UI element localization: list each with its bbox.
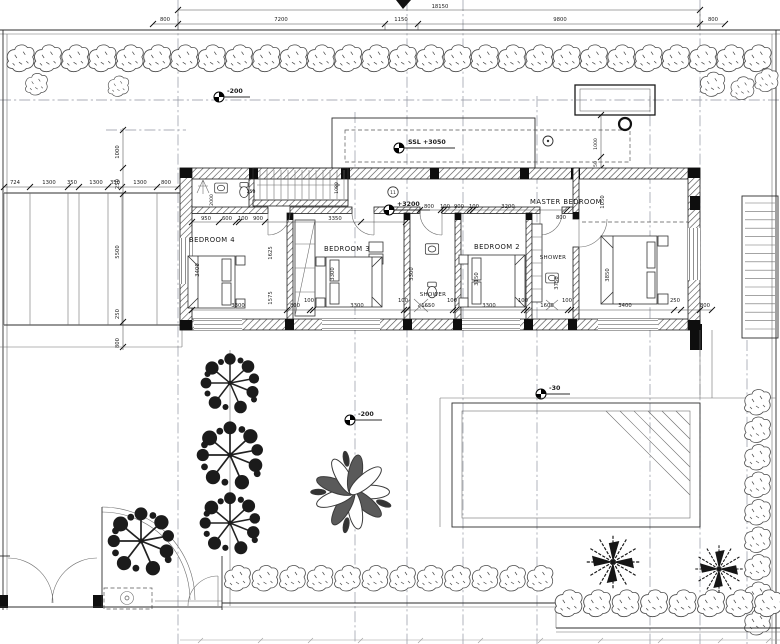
dim-label: 1300 [133, 180, 147, 186]
shower1-fixtures [414, 244, 439, 312]
level-label: SSL +3050 [408, 139, 446, 146]
svg-text:3750: 3750 [554, 276, 560, 290]
dim-label: 350 [67, 180, 78, 186]
svg-text:900: 900 [253, 216, 264, 222]
svg-text:3150: 3150 [474, 272, 480, 286]
svg-text:3200: 3200 [501, 204, 515, 210]
svg-text:950: 950 [201, 216, 212, 222]
svg-text:600: 600 [222, 216, 233, 222]
bed-bedroom3 [316, 257, 382, 307]
svg-text:1650: 1650 [421, 303, 435, 309]
dim-label: 800 [160, 17, 171, 23]
dim-label: 724 [10, 180, 21, 186]
dim-label: 800 [115, 337, 121, 348]
svg-text:3300: 3300 [350, 303, 364, 309]
svg-text:100: 100 [447, 298, 458, 304]
room-label-bedroom3: BEDROOM 3 [324, 245, 370, 253]
room-label-master: MASTER BEDROOM [530, 198, 602, 206]
svg-text:800: 800 [290, 303, 301, 309]
dim-total: 18150 [432, 4, 449, 10]
svg-text:3850: 3850 [605, 268, 611, 282]
dim-label: 5500 [115, 245, 121, 259]
svg-text:100: 100 [398, 298, 409, 304]
svg-text:3400: 3400 [618, 303, 632, 309]
palm-plant [586, 535, 641, 590]
svg-text:100: 100 [238, 216, 249, 222]
svg-text:3300: 3300 [482, 303, 496, 309]
svg-text:11: 11 [390, 190, 396, 196]
dim-label: 9800 [553, 17, 567, 23]
svg-text:3300: 3300 [231, 303, 245, 309]
bed-bedroom2 [459, 255, 525, 307]
floor-plan-canvas: 18150 800 7200 1150 9800 800 -200 [0, 0, 780, 644]
dim-label: 250 [115, 178, 121, 189]
pool-steps-hatch [606, 411, 690, 495]
level-marker-ssl: SSL +3050 [394, 139, 455, 153]
roof-outline: SSL +3050 1000 50 [332, 85, 655, 171]
palm-plant [694, 544, 743, 593]
svg-text:1050: 1050 [600, 195, 606, 209]
room-label-shower2: SHOWER [540, 255, 567, 261]
dim-label: 800 [708, 17, 719, 23]
svg-text:1575: 1575 [268, 291, 274, 304]
svg-text:800: 800 [700, 303, 711, 309]
dim-label: 250 [115, 308, 121, 319]
level-label: -200 [227, 88, 243, 95]
dim-label: 1080 [334, 182, 340, 194]
pool [440, 398, 776, 527]
hedge-top-row [7, 45, 771, 72]
dim-label: 250 [247, 189, 256, 195]
dim-label: 2000 [209, 194, 215, 206]
hedge-bottom-right [555, 590, 780, 617]
svg-text:3350: 3350 [328, 216, 342, 222]
grid-bubble: 11 [388, 187, 398, 197]
room-label-shower1: SHOWER [420, 292, 447, 298]
svg-text:100: 100 [562, 298, 573, 304]
svg-text:100: 100 [518, 298, 529, 304]
svg-text:100: 100 [440, 204, 451, 210]
side-door [188, 576, 218, 606]
svg-text:3400: 3400 [195, 263, 201, 277]
hedge-top-right-cluster [25, 69, 778, 100]
svg-text:250: 250 [670, 298, 681, 304]
dim-label: 1300 [89, 180, 103, 186]
svg-text:800: 800 [424, 204, 435, 210]
svg-text:100: 100 [304, 298, 315, 304]
floor-plan-drawing: 18150 800 7200 1150 9800 800 -200 [0, 0, 780, 644]
room-label-bedroom4: BEDROOM 4 [189, 236, 235, 244]
level-label: -30 [549, 385, 561, 392]
dim-label: 800 [161, 180, 172, 186]
entrance-fixtures: 2000 250 [197, 180, 255, 206]
dim-label: 50 [593, 161, 599, 167]
dim-label: 1000 [115, 145, 121, 159]
top-dimension-chain: 18150 800 7200 1150 9800 800 [150, 0, 728, 30]
louver-deck [700, 196, 778, 398]
svg-text:3300: 3300 [330, 267, 336, 281]
svg-text:100: 100 [469, 204, 480, 210]
bed-master [601, 236, 668, 304]
room-label-bedroom2: BEDROOM 2 [474, 243, 520, 251]
svg-text:800: 800 [556, 215, 567, 221]
pergola-carport: 724 1300 350 1300 350 1300 800 1000 250 … [0, 127, 182, 350]
olive-tree [311, 451, 392, 533]
svg-text:900: 900 [454, 204, 465, 210]
level-marker-pool: -30 [536, 385, 570, 399]
svg-text:1600: 1600 [540, 303, 554, 309]
dim-label: 1000 [593, 138, 599, 150]
svg-text:3300: 3300 [409, 267, 415, 281]
bottom-dimension-line [180, 638, 780, 643]
level-label: +3200 [397, 201, 420, 208]
hedge-bottom-left [225, 566, 553, 591]
dim-label: 1300 [42, 180, 56, 186]
utility-box [104, 588, 152, 609]
tree [108, 507, 174, 575]
dim-label: 7200 [274, 17, 288, 23]
shower2-fixtures [532, 224, 558, 310]
svg-text:1625: 1625 [268, 246, 274, 259]
north-arrow [396, 0, 411, 9]
level-label: -200 [358, 411, 374, 418]
level-marker-garden: -200 [345, 411, 382, 425]
building: 1080 2000 250 [180, 168, 715, 350]
dim-label: 1150 [394, 17, 408, 23]
